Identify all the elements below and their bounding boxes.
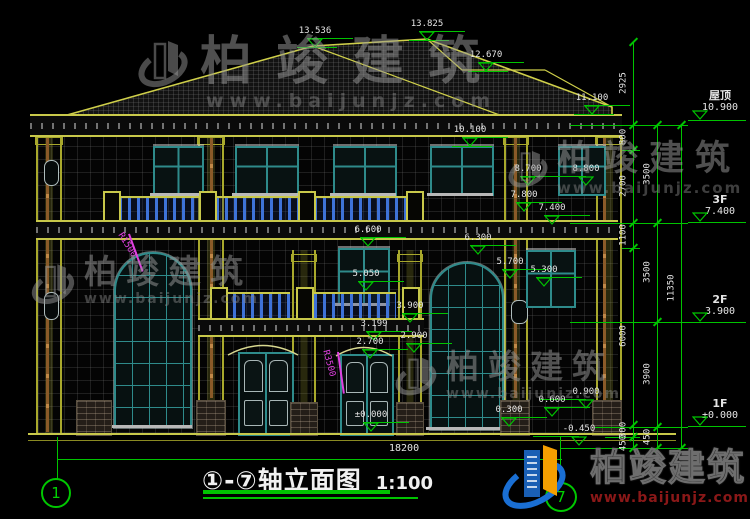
window-3f (153, 146, 204, 196)
cad-elevation-drawing: 2925800270011006000300450 35003500390045… (0, 0, 750, 519)
elevation-triangle-icon (578, 176, 594, 187)
dimension-value: 2700 (620, 175, 629, 197)
brick-pedestal (396, 402, 424, 436)
elevation-triangle-icon (544, 215, 560, 226)
dimension-value: 3500 (644, 261, 653, 283)
brick-pedestal (290, 402, 318, 436)
elevation-triangle-icon (501, 417, 517, 428)
dimension-value: 1100 (620, 224, 629, 246)
elevation-triangle-icon (578, 399, 594, 410)
elevation-triangle-icon (536, 277, 552, 288)
elevation-triangle-icon (520, 176, 536, 187)
elevation-triangle-icon (692, 416, 708, 427)
wall-niche (44, 292, 59, 320)
company-logo-brand: 柏竣建筑 (590, 449, 749, 486)
elevation-triangle-icon (584, 105, 600, 116)
tall-arched-window-right (430, 262, 504, 430)
eave-cornice (30, 114, 622, 137)
elevation-triangle-icon (419, 31, 435, 42)
brick-pedestal (196, 400, 226, 436)
elevation-triangle-icon (692, 212, 708, 223)
title-underline-thin (203, 497, 418, 499)
title-underline-thick (203, 490, 390, 494)
elevation-triangle-icon (502, 269, 518, 280)
elevation-triangle-icon (360, 237, 376, 248)
elevation-triangle-icon (470, 245, 486, 256)
dimension-value: 2925 (620, 72, 629, 94)
dimension-value: 3500 (644, 163, 653, 185)
dimension-value: 800 (620, 129, 629, 145)
entry-door-left (238, 352, 294, 436)
window-sill (426, 427, 504, 430)
elevation-triangle-icon (462, 137, 478, 148)
elevation-triangle-icon (358, 281, 374, 292)
wall-niche (44, 160, 59, 186)
dimension-value: 3900 (644, 363, 653, 385)
window-3f (430, 146, 494, 196)
dimension-value: 11350 (668, 274, 677, 301)
brick-pedestal (76, 400, 112, 436)
elevation-triangle-icon (478, 62, 494, 73)
elevation-triangle-icon (363, 422, 379, 433)
elevation-triangle-icon (692, 312, 708, 323)
elevation-triangle-icon (692, 110, 708, 121)
downspout-mid-right (514, 138, 517, 398)
window-3f (235, 146, 299, 196)
company-logo-icon (494, 438, 582, 516)
elevation-triangle-icon (406, 343, 422, 354)
company-logo: 柏竣建筑 www.baijunjz.com (494, 438, 749, 516)
window-3f (333, 146, 397, 196)
company-logo-url: www.baijunjz.com (590, 490, 749, 506)
window-sill (110, 425, 192, 428)
elevation-triangle-icon (362, 349, 378, 360)
dimension-value: 6000 (620, 325, 629, 347)
window-sill (427, 193, 493, 196)
axis-bubble-1: 1 (41, 478, 71, 508)
elevation-triangle-icon (402, 313, 418, 324)
overall-width-dimension: 18200 (389, 444, 419, 454)
roof (28, 26, 624, 120)
elevation-triangle-icon (307, 38, 323, 49)
tall-arched-window-left (114, 252, 192, 428)
